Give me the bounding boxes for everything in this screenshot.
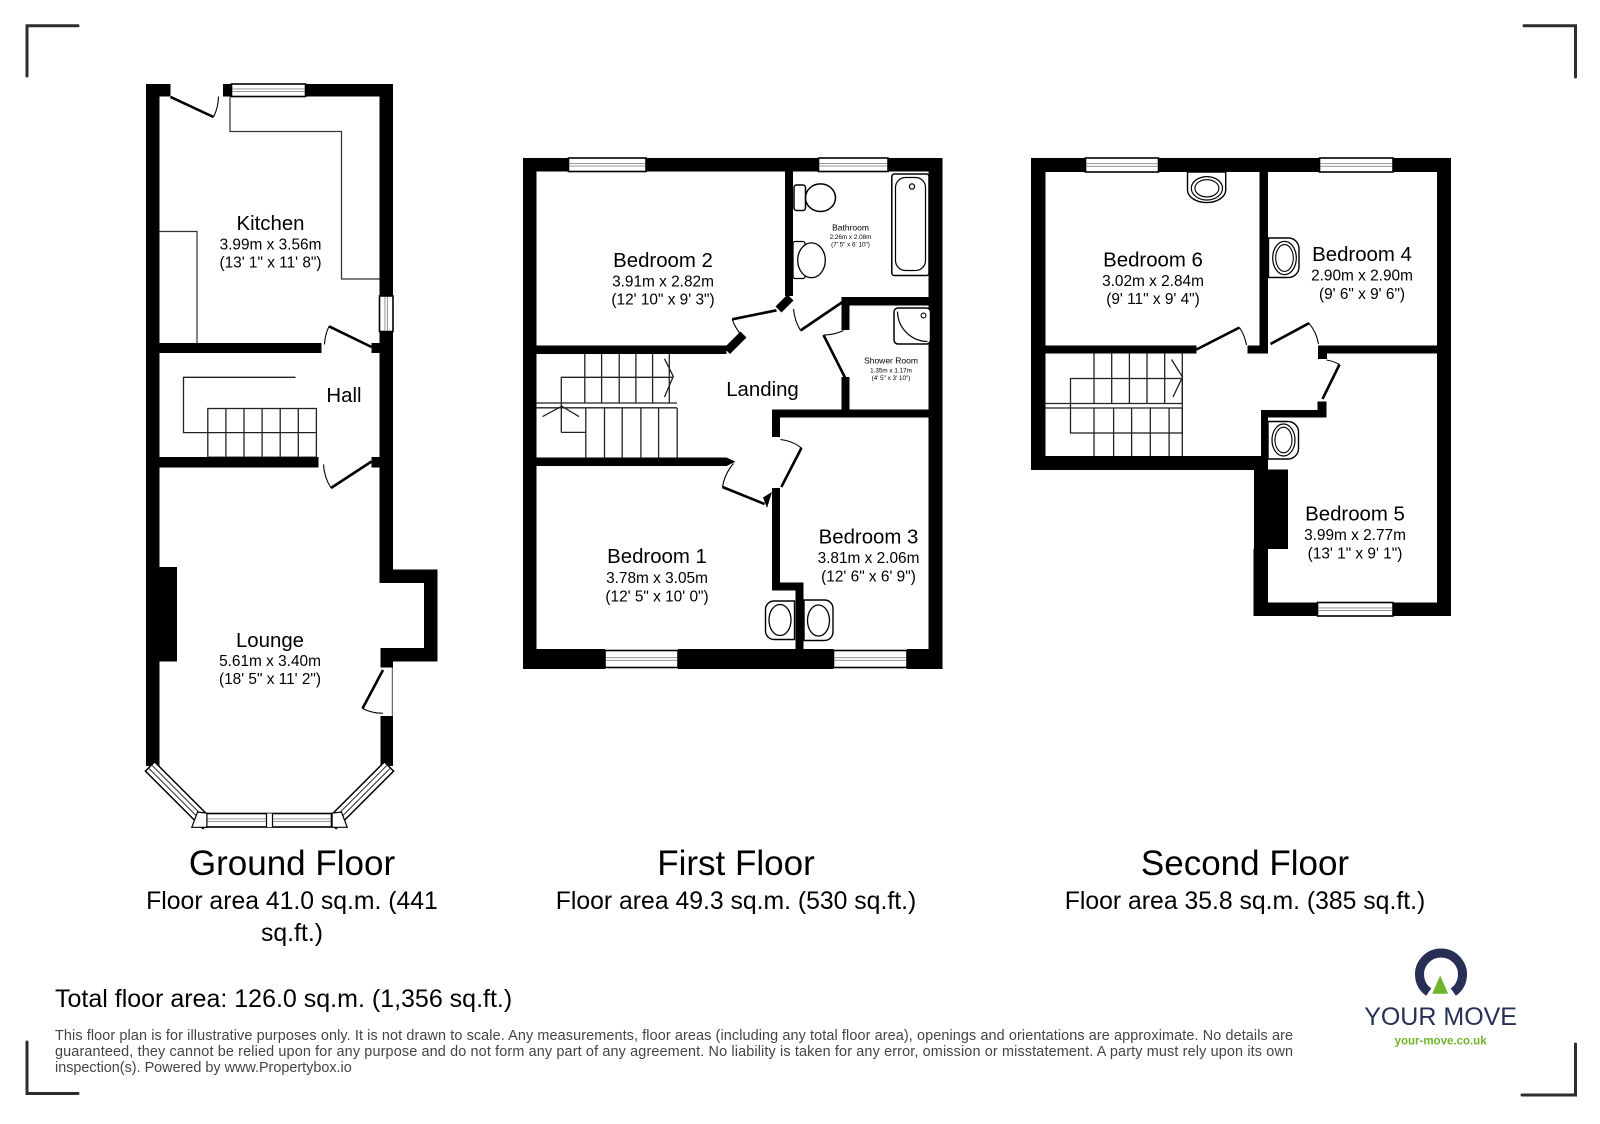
svg-text:Bedroom 3: Bedroom 3 xyxy=(819,527,919,549)
svg-text:3.99m x 3.56m: 3.99m x 3.56m xyxy=(220,237,322,254)
svg-text:2.26m x 2.08m: 2.26m x 2.08m xyxy=(830,234,872,241)
svg-text:(13' 1" x 9' 1"): (13' 1" x 9' 1") xyxy=(1308,546,1403,563)
svg-text:Bedroom 1: Bedroom 1 xyxy=(607,546,707,568)
svg-text:Hall: Hall xyxy=(326,385,361,407)
svg-text:Shower Room: Shower Room xyxy=(864,356,918,366)
svg-text:1.35m x 1.17m: 1.35m x 1.17m xyxy=(870,367,912,374)
svg-text:First Floor: First Floor xyxy=(657,844,815,883)
svg-text:sq.ft.): sq.ft.) xyxy=(261,920,323,947)
svg-text:Floor area 41.0 sq.m. (441: Floor area 41.0 sq.m. (441 xyxy=(146,888,438,915)
svg-text:(12' 6" x 6' 9"): (12' 6" x 6' 9") xyxy=(821,569,916,586)
svg-text:3.02m x 2.84m: 3.02m x 2.84m xyxy=(1102,273,1204,290)
svg-text:guaranteed, they cannot be rel: guaranteed, they cannot be relied upon f… xyxy=(55,1044,1293,1060)
svg-text:(4' 5" x 3' 10"): (4' 5" x 3' 10") xyxy=(872,375,911,382)
svg-text:Bathroom: Bathroom xyxy=(832,223,869,233)
svg-text:Landing: Landing xyxy=(726,379,799,401)
svg-text:2.90m x 2.90m: 2.90m x 2.90m xyxy=(1311,268,1413,285)
svg-text:Bedroom 2: Bedroom 2 xyxy=(613,250,713,272)
svg-text:3.91m x 2.82m: 3.91m x 2.82m xyxy=(612,274,714,291)
svg-text:Kitchen: Kitchen xyxy=(236,213,304,235)
svg-text:YOUR MOVE: YOUR MOVE xyxy=(1364,1003,1517,1031)
svg-text:inspection(s). Powered by www.: inspection(s). Powered by www.Propertybo… xyxy=(55,1060,352,1076)
svg-text:(9' 6" x 9' 6"): (9' 6" x 9' 6") xyxy=(1319,286,1405,303)
svg-text:(18' 5" x 11' 2"): (18' 5" x 11' 2") xyxy=(219,671,321,688)
svg-text:Bedroom 4: Bedroom 4 xyxy=(1312,244,1412,266)
svg-text:your-move.co.uk: your-move.co.uk xyxy=(1395,1036,1488,1048)
svg-text:(7' 5" x 6' 10"): (7' 5" x 6' 10") xyxy=(831,242,870,249)
svg-text:Total floor area: 126.0 sq.m.: Total floor area: 126.0 sq.m. (1,356 sq.… xyxy=(55,985,512,1013)
svg-text:Bedroom 6: Bedroom 6 xyxy=(1103,250,1203,272)
svg-text:5.61m x 3.40m: 5.61m x 3.40m xyxy=(219,653,321,670)
svg-text:(9' 11" x 9' 4"): (9' 11" x 9' 4") xyxy=(1106,291,1200,308)
svg-text:(12' 5" x 10' 0"): (12' 5" x 10' 0") xyxy=(605,589,708,606)
svg-text:This floor plan is for illustr: This floor plan is for illustrative purp… xyxy=(55,1028,1293,1044)
svg-text:Floor area 49.3 sq.m. (530 sq.: Floor area 49.3 sq.m. (530 sq.ft.) xyxy=(556,888,916,915)
svg-text:Bedroom 5: Bedroom 5 xyxy=(1305,504,1405,526)
svg-text:(13' 1" x 11' 8"): (13' 1" x 11' 8") xyxy=(219,255,321,272)
svg-text:Floor area 35.8 sq.m. (385 sq.: Floor area 35.8 sq.m. (385 sq.ft.) xyxy=(1065,888,1425,915)
svg-text:Lounge: Lounge xyxy=(236,630,304,652)
svg-text:3.81m x 2.06m: 3.81m x 2.06m xyxy=(818,550,920,567)
svg-text:Ground Floor: Ground Floor xyxy=(189,844,396,883)
svg-text:(12' 10" x 9' 3"): (12' 10" x 9' 3") xyxy=(611,292,714,309)
svg-text:3.99m x 2.77m: 3.99m x 2.77m xyxy=(1304,527,1406,544)
svg-text:3.78m x 3.05m: 3.78m x 3.05m xyxy=(606,570,708,587)
svg-text:Second Floor: Second Floor xyxy=(1141,844,1350,883)
